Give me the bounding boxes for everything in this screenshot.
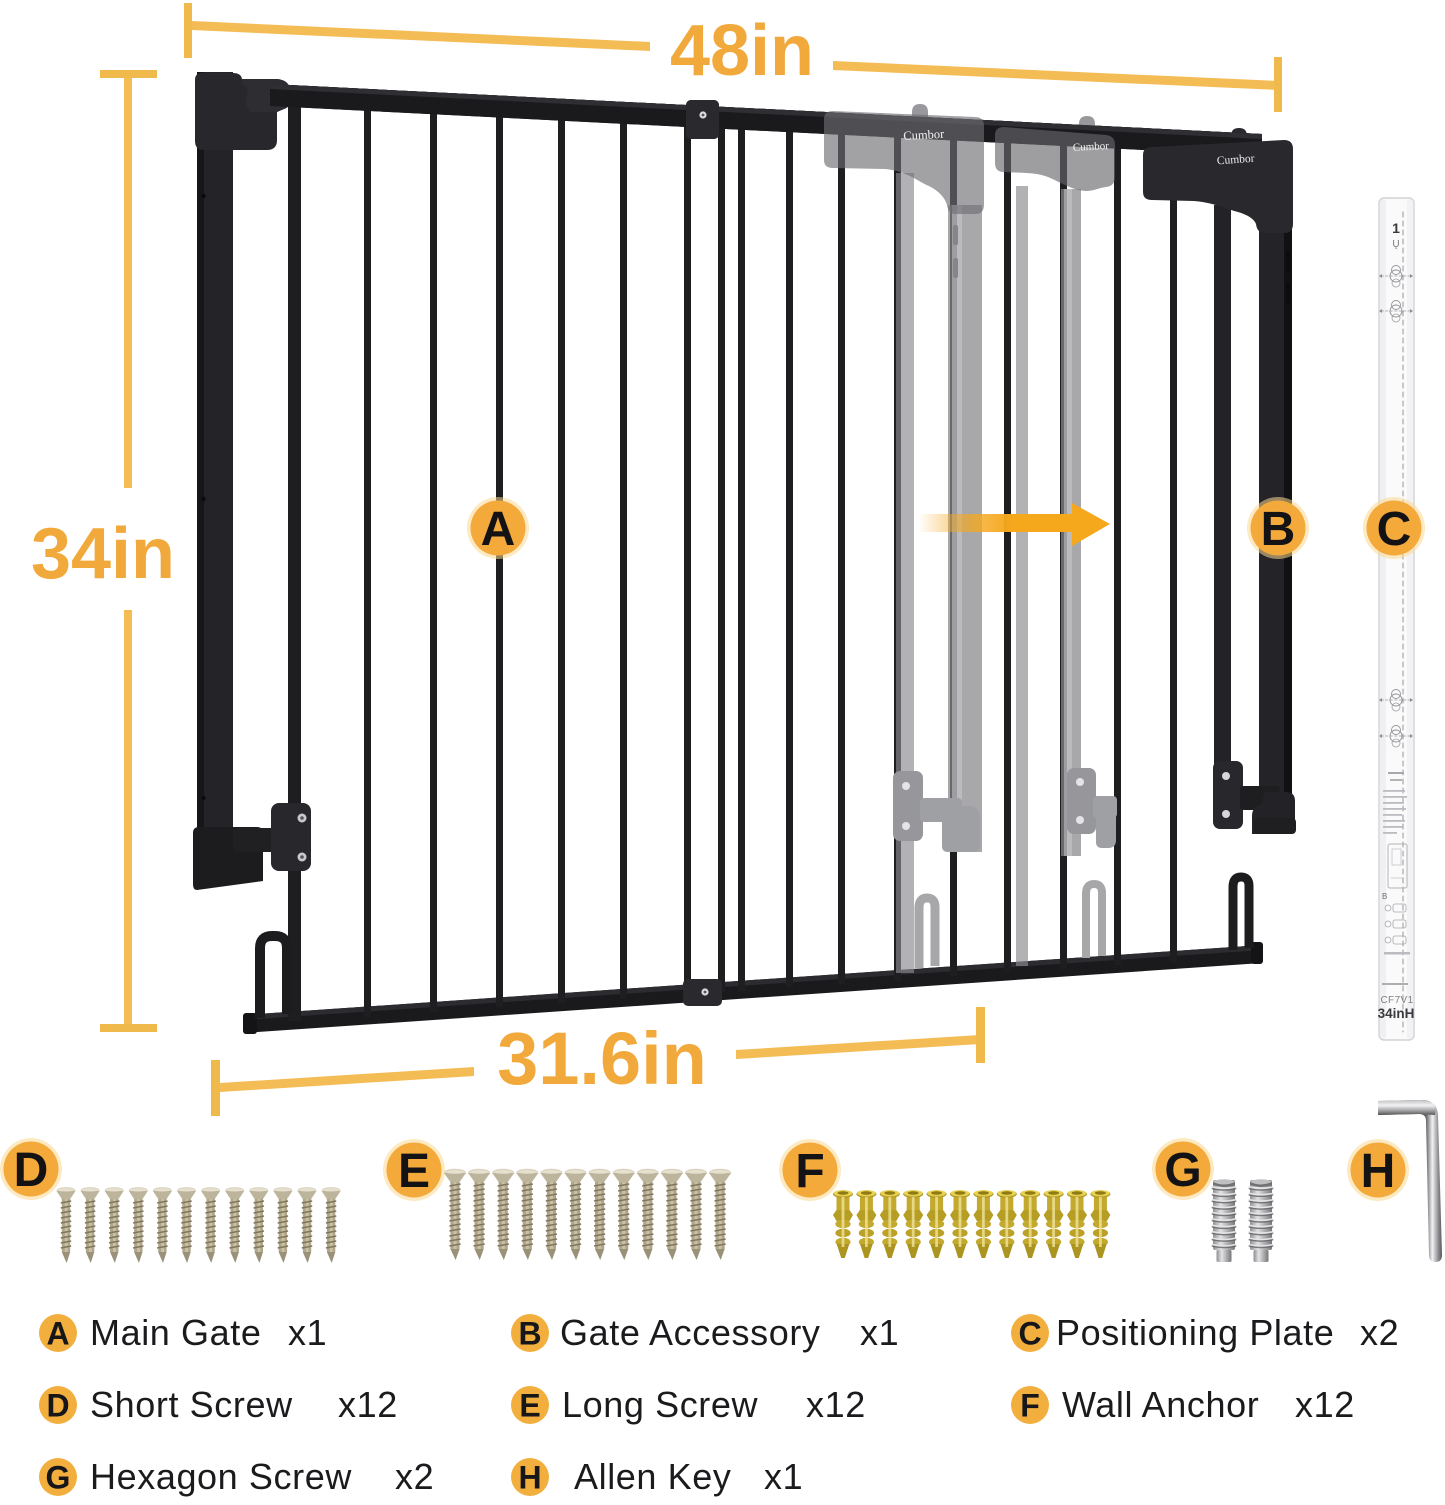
svg-text:Allen Key: Allen Key bbox=[574, 1456, 732, 1497]
svg-text:B: B bbox=[1382, 892, 1387, 901]
svg-text:34inH: 34inH bbox=[1378, 1006, 1415, 1021]
svg-text:C: C bbox=[1018, 1316, 1041, 1352]
svg-text:31.6in: 31.6in bbox=[497, 1017, 707, 1100]
svg-text:Gate Accessory: Gate Accessory bbox=[560, 1312, 821, 1353]
svg-text:G: G bbox=[1164, 1144, 1201, 1197]
svg-text:F: F bbox=[795, 1145, 824, 1198]
svg-text:Cumbor: Cumbor bbox=[1073, 140, 1110, 154]
svg-text:x12: x12 bbox=[806, 1384, 866, 1425]
svg-text:x12: x12 bbox=[1295, 1384, 1355, 1425]
svg-text:1: 1 bbox=[1392, 220, 1400, 236]
svg-text:D: D bbox=[46, 1388, 69, 1424]
svg-text:B: B bbox=[1261, 503, 1296, 556]
svg-text:x1: x1 bbox=[764, 1456, 803, 1497]
svg-text:D: D bbox=[14, 1144, 49, 1197]
svg-text:F: F bbox=[1020, 1388, 1040, 1424]
svg-text:x1: x1 bbox=[860, 1312, 899, 1353]
svg-text:E: E bbox=[519, 1388, 540, 1424]
svg-text:B: B bbox=[518, 1316, 541, 1352]
svg-text:Hexagon Screw: Hexagon Screw bbox=[90, 1456, 352, 1497]
svg-text:x2: x2 bbox=[395, 1456, 434, 1497]
svg-text:C: C bbox=[1377, 503, 1412, 556]
svg-text:Cumbor: Cumbor bbox=[903, 127, 945, 143]
svg-text:E: E bbox=[398, 1145, 430, 1198]
svg-text:G: G bbox=[46, 1460, 71, 1496]
svg-text:Positioning Plate: Positioning Plate bbox=[1056, 1312, 1334, 1353]
svg-text:x12: x12 bbox=[338, 1384, 398, 1425]
svg-text:34in: 34in bbox=[31, 514, 175, 594]
svg-text:H: H bbox=[518, 1460, 541, 1496]
svg-text:CF7V1: CF7V1 bbox=[1380, 995, 1413, 1006]
svg-text:48in: 48in bbox=[670, 11, 814, 91]
svg-text:Long Screw: Long Screw bbox=[562, 1384, 759, 1425]
svg-text:x2: x2 bbox=[1360, 1312, 1399, 1353]
svg-text:Main Gate: Main Gate bbox=[90, 1312, 261, 1353]
svg-text:A: A bbox=[481, 503, 516, 556]
svg-text:Ų: Ų bbox=[1392, 239, 1399, 250]
svg-text:H: H bbox=[1361, 1145, 1396, 1198]
svg-text:Short Screw: Short Screw bbox=[90, 1384, 293, 1425]
svg-text:x1: x1 bbox=[288, 1312, 327, 1353]
svg-text:A: A bbox=[46, 1316, 69, 1352]
svg-text:Wall Anchor: Wall Anchor bbox=[1062, 1384, 1259, 1425]
